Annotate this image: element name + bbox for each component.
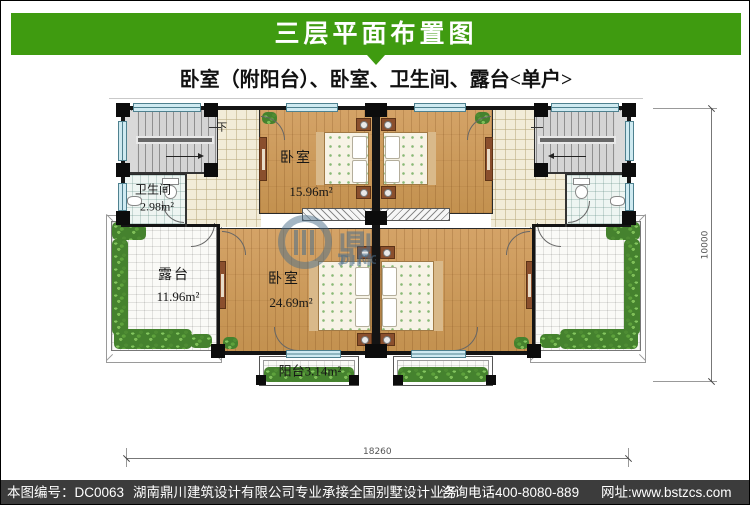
column <box>116 211 130 225</box>
nightstand <box>381 186 396 199</box>
bed-foot-band <box>433 261 443 331</box>
wall-stair-bottom <box>534 172 629 174</box>
toilet-bowl <box>575 185 588 199</box>
drawing-sheet: 三层平面布置图 卧室（附阳台）、卧室、卫生间、露台<单户> <box>0 0 750 505</box>
bed-foot-band <box>316 132 325 185</box>
nightstand <box>356 118 371 131</box>
column <box>622 163 636 177</box>
bed-pillow <box>355 298 370 327</box>
lamp <box>384 121 392 129</box>
area-label-terrace-left: 11.96m² <box>157 289 200 305</box>
column <box>534 103 548 117</box>
stair-down-label-left: 下 <box>217 120 228 135</box>
terrace-plants <box>114 329 192 349</box>
window-bedroom-small <box>414 103 466 112</box>
label-balcony-left: 阳台3.14m² <box>279 361 342 380</box>
terrace-plants <box>560 329 638 349</box>
eave-line-top <box>109 98 643 99</box>
dim-height-label: 10000 <box>700 229 710 262</box>
stair-down-leader <box>531 127 543 128</box>
column <box>116 163 130 177</box>
window-bedroom-small <box>286 103 338 112</box>
window-stair-side <box>625 121 634 161</box>
bedroom-wall-cabinet <box>259 137 267 181</box>
wall-bath-right <box>185 174 187 227</box>
terrace-plants <box>540 334 562 348</box>
room-label-bedroom-large-left: 卧室 <box>268 268 300 288</box>
lamp <box>360 189 368 197</box>
dim-line <box>126 458 629 459</box>
area-label-bedroom-large-left: 24.69m² <box>269 295 312 311</box>
balcony-plants <box>398 367 488 382</box>
dim-ext-line <box>653 108 717 109</box>
lamp <box>384 189 392 197</box>
footer-company: 湖南鼎川建筑设计有限公司专业承接全国别墅设计业务 <box>133 480 457 505</box>
stair-arrow-head <box>548 153 554 159</box>
bed-pillow <box>352 160 367 183</box>
page-title: 三层平面布置图 <box>274 20 477 48</box>
nightstand <box>356 186 371 199</box>
area-label-bedroom-small-left: 15.96m² <box>289 184 332 200</box>
wardrobe-hatch <box>378 208 450 221</box>
column <box>211 344 225 358</box>
dwelling-unit <box>376 101 646 396</box>
nightstand <box>380 246 395 259</box>
footer-website: 网址:www.bstzcs.com <box>601 480 732 505</box>
wall-bedroom-left <box>532 225 535 355</box>
column <box>486 375 496 385</box>
toilet-tank <box>573 178 590 185</box>
column <box>373 103 387 117</box>
stair-handrail <box>136 136 214 144</box>
column <box>349 375 359 385</box>
lamp <box>383 336 391 344</box>
window-balcony-wall <box>286 350 341 358</box>
stair-handrail <box>538 136 616 144</box>
plan-subtitle: 卧室（附阳台）、卧室、卫生间、露台<单户> <box>1 63 750 92</box>
footer-phone: 咨询电话400-8080-889 <box>441 480 579 505</box>
window-bathroom <box>118 183 127 211</box>
footer-drawing-number: 本图编号：DC0063 <box>7 480 124 505</box>
room-label-terrace-left: 露台 <box>158 264 190 284</box>
bed-pillow <box>382 267 397 296</box>
nightstand <box>381 118 396 131</box>
dim-line <box>711 108 712 382</box>
column <box>527 344 541 358</box>
dim-width-label: 18260 <box>361 447 394 457</box>
lamp <box>361 336 369 344</box>
terrace-plants <box>112 239 128 335</box>
sink <box>610 196 625 206</box>
column <box>622 103 636 117</box>
area-label-bathroom-left: 2.98m² <box>140 200 174 215</box>
terrace-plants <box>190 334 212 348</box>
bed-pillow <box>352 136 367 159</box>
bed-foot-band <box>427 132 436 185</box>
column <box>204 103 218 117</box>
column <box>116 103 130 117</box>
column <box>393 375 403 385</box>
room-label-bathroom-left: 卫生间 <box>135 181 171 198</box>
column <box>256 375 266 385</box>
stair-arrow-line <box>552 156 586 157</box>
dim-ext-line <box>653 381 717 382</box>
window-stair <box>133 103 201 112</box>
wall-center <box>376 106 380 355</box>
window-stair-side <box>118 121 127 161</box>
watermark-logo-icon <box>278 215 332 269</box>
room-label-bedroom-small-left: 卧室 <box>280 147 312 167</box>
lamp <box>360 121 368 129</box>
stair-arrow-head <box>198 153 204 159</box>
column <box>204 163 218 177</box>
terrace-plants <box>624 239 640 335</box>
bedroom-plant <box>223 337 238 349</box>
lamp <box>383 249 391 257</box>
window-balcony-wall <box>411 350 466 358</box>
bed-pillow <box>385 160 400 183</box>
column <box>373 211 387 225</box>
bed-pillow <box>382 298 397 327</box>
bedroom-wall-cabinet <box>485 137 493 181</box>
column <box>622 211 636 225</box>
window-stair <box>551 103 619 112</box>
wall-bath-right <box>565 174 567 227</box>
title-bar: 三层平面布置图 <box>11 13 741 55</box>
wall-bath-bottom <box>532 224 631 227</box>
stair-arrow-line <box>166 156 200 157</box>
bed-pillow <box>385 136 400 159</box>
dwelling-unit <box>106 101 376 396</box>
footer-bar: 本图编号：DC0063 湖南鼎川建筑设计有限公司专业承接全国别墅设计业务 咨询电… <box>1 480 750 505</box>
column <box>373 344 387 358</box>
wall-bedroom-left <box>217 225 220 355</box>
window-bathroom <box>625 183 634 211</box>
column <box>534 163 548 177</box>
wall-bath-bottom <box>121 224 220 227</box>
